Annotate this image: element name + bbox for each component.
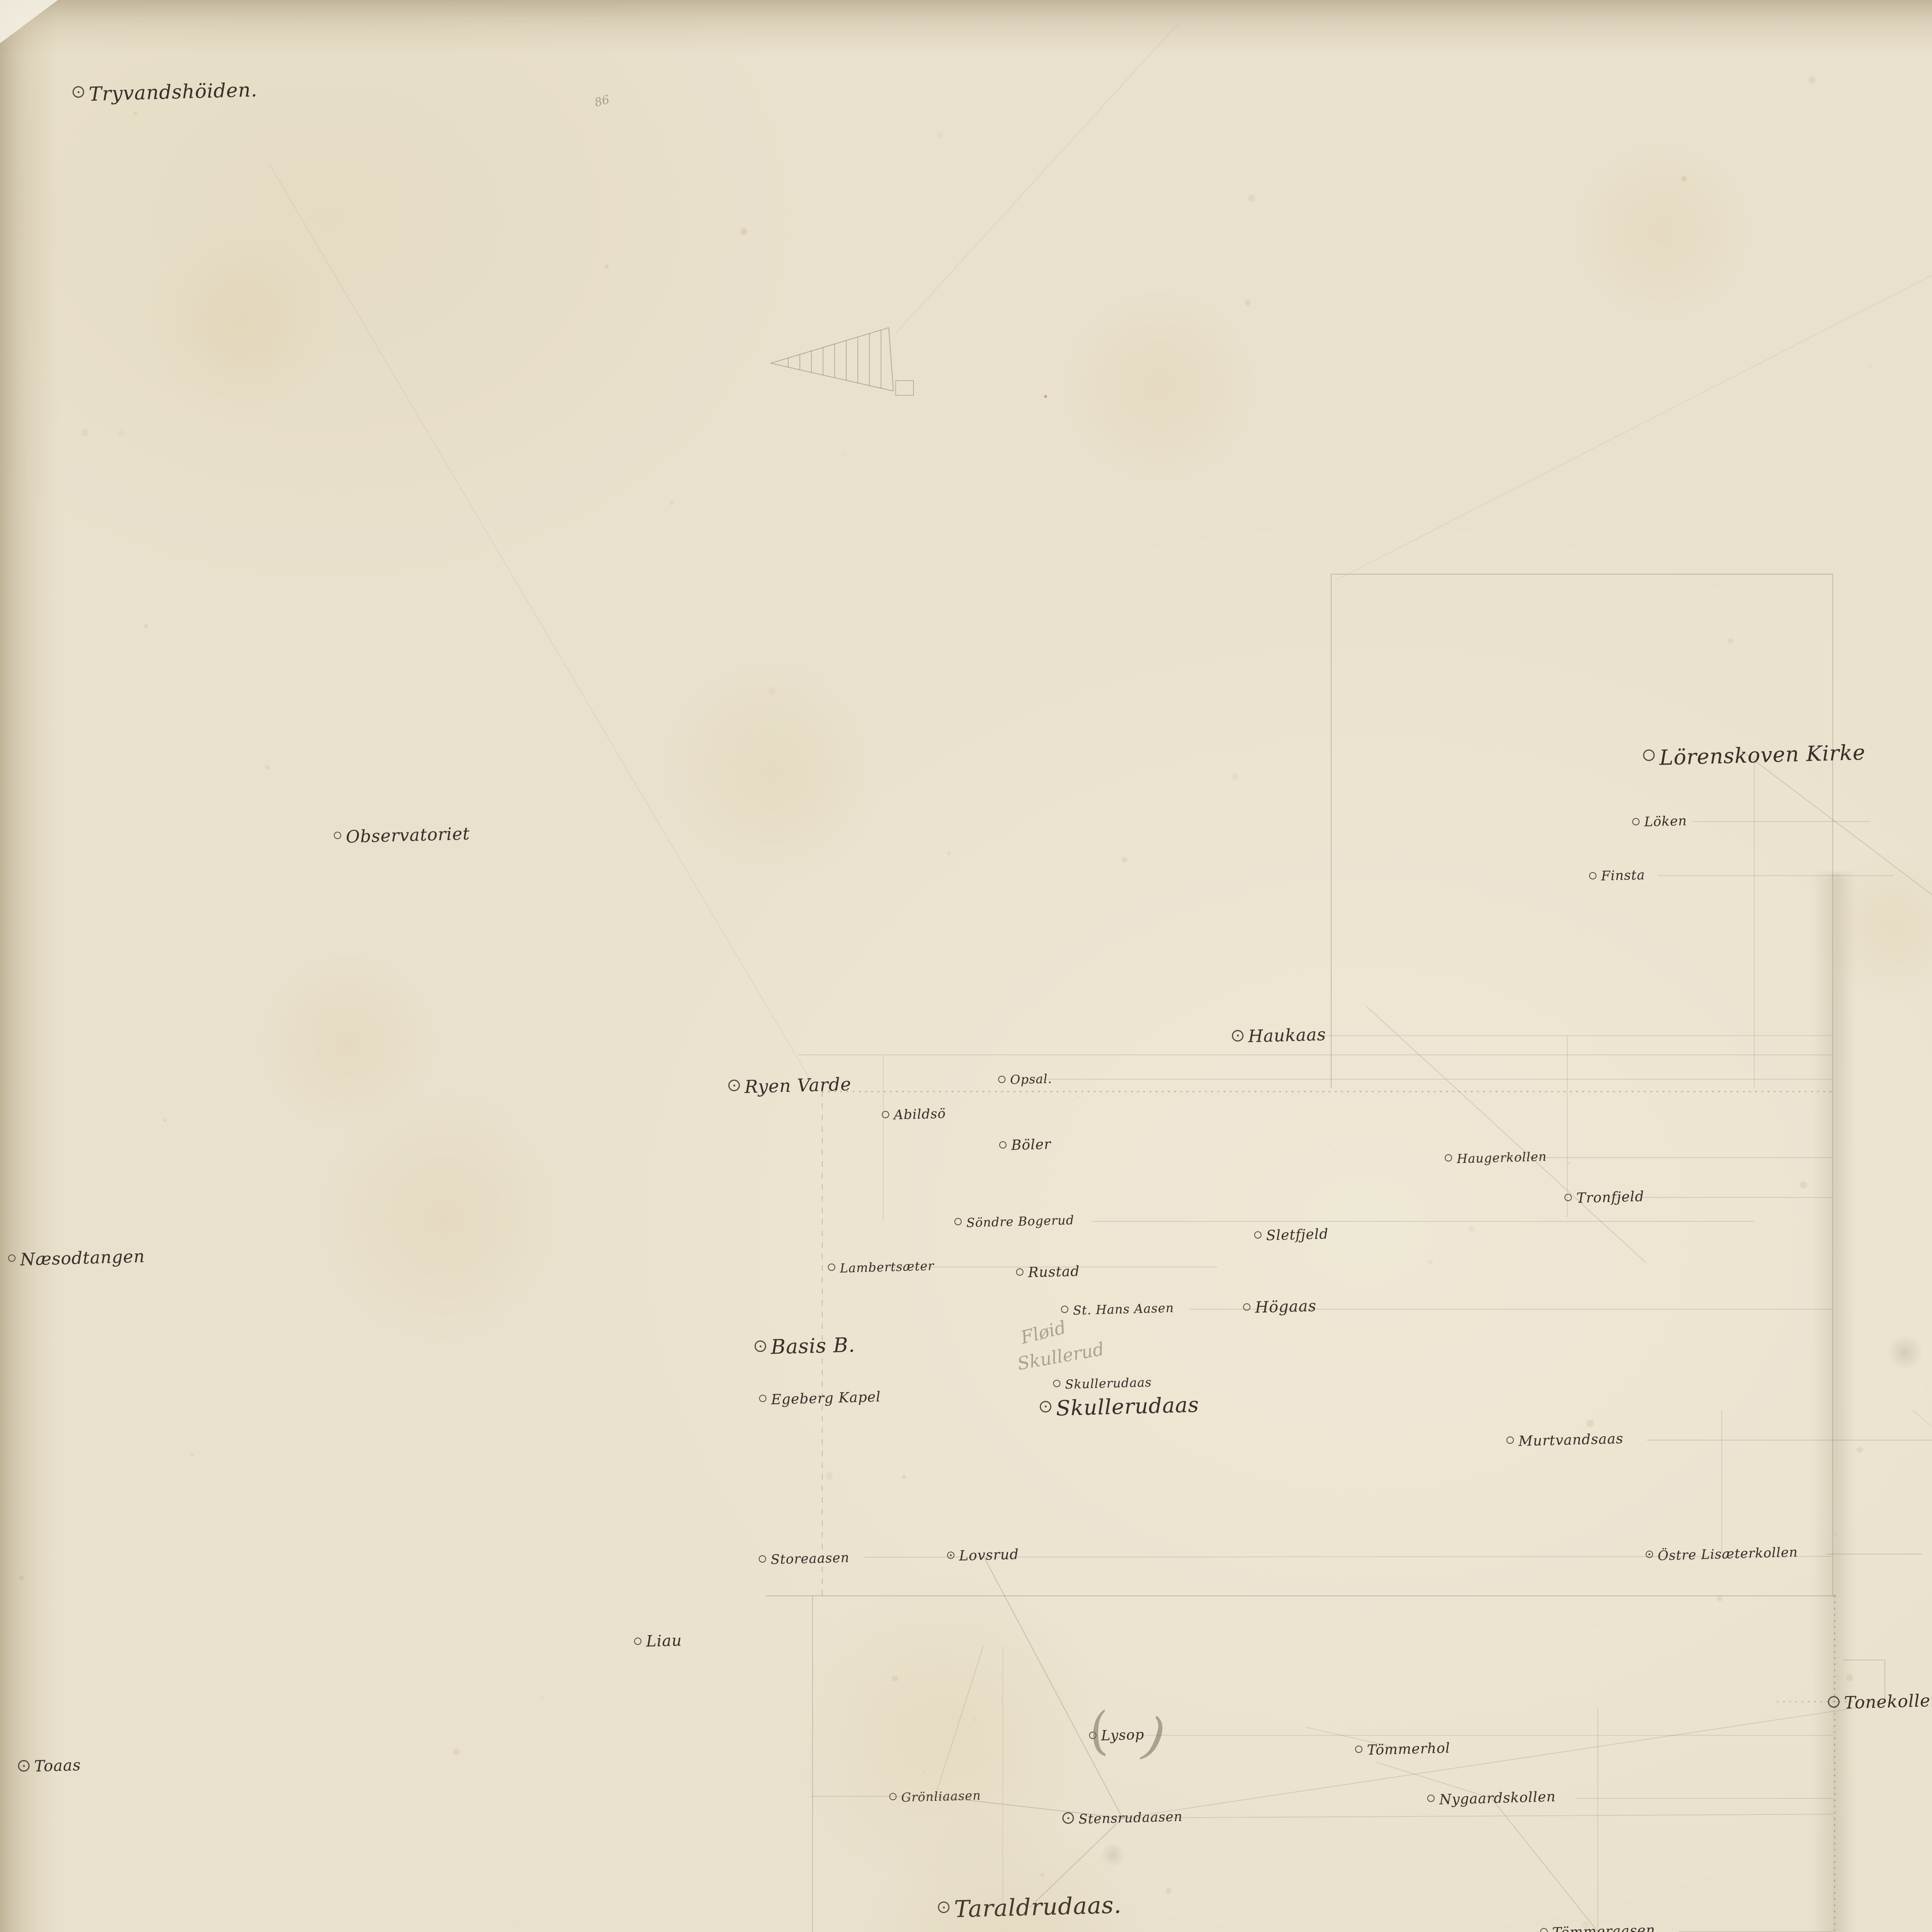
station-marker-icon: [18, 1760, 30, 1772]
torn-corner: [0, 0, 58, 43]
foxing-speck: [1232, 773, 1238, 780]
foxing-speck: [1869, 364, 1872, 367]
paper-stain: [657, 657, 889, 889]
foxing-speck: [1468, 1226, 1475, 1233]
foxing-speck: [1041, 1873, 1044, 1877]
station-marker-icon: [1589, 872, 1597, 879]
station-marker-icon: [1061, 1306, 1068, 1313]
station-label: Skullerudaas: [1056, 1393, 1199, 1421]
station-label: Taraldrudaas.: [954, 1891, 1122, 1923]
station-label: Tömmeraasen: [1552, 1922, 1656, 1932]
station-label: Liau: [646, 1632, 682, 1650]
foxing-speck: [740, 228, 747, 235]
station-tryvandshoiden: Tryvandshöiden.: [73, 81, 257, 103]
foxing-speck: [190, 1453, 194, 1457]
station-sondre-bogerud: Söndre Bogerud: [954, 1214, 1074, 1229]
station-marker-icon: [1355, 1746, 1362, 1753]
station-marker-icon: [1445, 1154, 1452, 1162]
station-label: Lysop: [1101, 1727, 1145, 1744]
station-haugerkollen: Haugerkollen: [1445, 1150, 1547, 1165]
foxing-speck: [1248, 195, 1255, 202]
station-rustad: Rustad: [1016, 1264, 1080, 1280]
station-marker-icon: [828, 1264, 835, 1271]
foxing-speck: [119, 430, 124, 436]
station-tommeraasen: Tömmeraasen: [1540, 1924, 1655, 1932]
station-ryen-varde: Ryen Varde: [728, 1075, 851, 1096]
station-finsta: Finsta: [1589, 868, 1645, 883]
foxing-speck: [1834, 1532, 1837, 1535]
station-marker-icon: [1062, 1812, 1074, 1824]
station-marker-icon: [634, 1638, 641, 1645]
paper-stain: [784, 1569, 1109, 1893]
foxing-speck: [514, 1923, 516, 1925]
paper-stain: [1816, 850, 1932, 1005]
station-boler: Böler: [999, 1137, 1051, 1153]
station-label: Nygaardskollen: [1439, 1789, 1556, 1808]
foxing-speck: [1728, 638, 1733, 644]
foxing-speck: [769, 688, 776, 695]
station-label: Haukaas: [1248, 1025, 1327, 1046]
foxing-speck: [1567, 1162, 1570, 1165]
pencil-note: Fløid: [1019, 1316, 1068, 1348]
foxing-speck: [1428, 1259, 1432, 1264]
station-lorenskoven-kirke: Lörenskoven Kirke: [1643, 743, 1865, 767]
paper-vignette: [0, 0, 1932, 1932]
station-ostre-lisaeterkollen: Östre Lisæterkollen: [1646, 1546, 1798, 1562]
pencil-note: 86: [593, 93, 611, 110]
foxing-speck: [1717, 1596, 1722, 1601]
station-marker-icon: [334, 832, 341, 839]
station-label: Böler: [1011, 1136, 1051, 1153]
station-liau: Liau: [634, 1632, 682, 1650]
foxing-speck: [19, 1575, 24, 1580]
station-marker-icon: [759, 1395, 767, 1402]
station-marker-icon: [998, 1076, 1005, 1083]
station-label: St. Hans Aasen: [1073, 1301, 1174, 1318]
foxing-speck: [163, 1119, 167, 1122]
station-label: Tronfjeld: [1576, 1189, 1644, 1206]
station-label: Basis B.: [770, 1333, 855, 1359]
foxing-speck: [1166, 1888, 1172, 1894]
station-marker-icon: [1507, 1437, 1514, 1444]
foxing-speck: [453, 1748, 460, 1755]
foxing-speck: [265, 765, 270, 770]
survey-line: [1492, 1798, 1598, 1932]
station-loken: Löken: [1632, 814, 1687, 829]
station-marker-icon: [1016, 1269, 1024, 1276]
survey-line: [771, 363, 893, 391]
station-storeaasen: Storeaasen: [759, 1551, 850, 1566]
station-marker-icon: [954, 1218, 962, 1225]
survey-line: [983, 1555, 1122, 1818]
station-marker-icon: [73, 86, 84, 98]
station-marker-icon: [1232, 1030, 1243, 1041]
station-label: Skullerudaas: [1065, 1375, 1152, 1392]
station-haukaas: Haukaas: [1232, 1026, 1326, 1046]
station-skullerudaas: Skullerudaas: [1040, 1395, 1199, 1419]
foxing-speck: [892, 1675, 898, 1682]
station-murtvandsaas: Murtvandsaas: [1507, 1432, 1624, 1448]
survey-line: [1367, 1007, 1646, 1262]
foxing-speck: [1800, 1181, 1807, 1189]
station-marker-icon: [1565, 1194, 1572, 1201]
station-marker-icon: [1040, 1401, 1051, 1412]
station-st-hans-aasen: St. Hans Aasen: [1061, 1302, 1174, 1316]
station-marker-icon: [938, 1901, 949, 1913]
station-label: Östre Lisæterkollen: [1658, 1544, 1798, 1563]
survey-line: [896, 23, 1179, 332]
station-label: Næsodtangen: [20, 1247, 145, 1269]
station-marker-icon: [947, 1552, 954, 1559]
foxing-speck: [1587, 1420, 1594, 1427]
survey-line: [1122, 1814, 1833, 1818]
station-marker-icon: [1643, 749, 1655, 761]
survey-line: [270, 166, 811, 1082]
station-marker-icon: [1632, 818, 1639, 825]
station-label: Opsal.: [1010, 1071, 1053, 1087]
foxing-speck: [1594, 1624, 1596, 1626]
station-tommerhol: Tömmerhol: [1355, 1742, 1450, 1757]
station-label: Lovsrud: [959, 1546, 1019, 1564]
foxing-speck: [843, 452, 845, 455]
paper-stain: [255, 951, 440, 1136]
station-label: Tonekollen: [1844, 1690, 1932, 1713]
station-basis-b: Basis B.: [755, 1335, 855, 1358]
survey-lines: [0, 0, 1932, 1932]
foxing-speck: [605, 265, 609, 268]
survey-line: [1337, 70, 1932, 580]
foxing-speck: [1681, 176, 1687, 182]
station-label: Finsta: [1601, 867, 1645, 884]
paper-spot: [1888, 1335, 1922, 1370]
station-label: Egeberg Kapel: [771, 1389, 881, 1408]
survey-line: [771, 328, 889, 363]
map-canvas: Tryvandshöiden.Rusbjerg GaardLörenskoven…: [0, 0, 1932, 1932]
station-lambertsaeter: Lambertsæter: [828, 1260, 934, 1274]
foxing-speck: [937, 132, 944, 138]
station-label: Högaas: [1255, 1297, 1317, 1316]
station-taraldrudaas: Taraldrudaas.: [938, 1894, 1121, 1921]
foxing-speck: [1846, 1674, 1853, 1681]
paper-stain: [139, 224, 340, 425]
station-marker-icon: [1540, 1928, 1548, 1932]
station-marker-icon: [1427, 1795, 1435, 1802]
station-marker-icon: [755, 1340, 766, 1352]
station-marker-icon: [1089, 1732, 1097, 1739]
station-label: Observatoriet: [345, 824, 470, 847]
station-label: Haugerkollen: [1457, 1149, 1547, 1166]
fold-smudge: [1812, 873, 1855, 1932]
foxing-speck: [1122, 857, 1127, 862]
station-nygaardskollen: Nygaardskollen: [1427, 1791, 1556, 1806]
foxing-speck: [669, 500, 673, 505]
survey-line: [1913, 1410, 1932, 1492]
station-tonekollen: Tonekollen: [1828, 1692, 1932, 1712]
survey-line: [935, 1646, 983, 1796]
station-marker-icon: [728, 1080, 740, 1091]
station-marker-icon: [8, 1255, 15, 1262]
station-hogaas: Högaas: [1243, 1298, 1316, 1316]
foxing-speck: [1927, 1388, 1929, 1389]
station-label: Tömmerhol: [1367, 1740, 1450, 1759]
foxing-speck: [144, 624, 148, 628]
pencil-note: Skullerud: [1016, 1338, 1106, 1374]
station-label: Löken: [1644, 813, 1687, 830]
station-label: Lambertsæter: [840, 1259, 934, 1276]
foxing-speck: [81, 429, 88, 436]
station-lovsrud: Lovsrud: [947, 1548, 1019, 1563]
station-label: Storeaasen: [770, 1550, 850, 1567]
station-sletfjeld: Sletfjeld: [1254, 1227, 1328, 1243]
foxing-speck: [1327, 1143, 1330, 1146]
station-opsal: Opsal.: [998, 1072, 1052, 1087]
station-label: Söndre Bogerud: [966, 1213, 1074, 1230]
foxing-speck: [541, 1696, 544, 1699]
station-marker-icon: [1646, 1551, 1653, 1558]
station-toaas: Toaas: [18, 1757, 81, 1775]
station-lysop: Lysop: [1089, 1728, 1145, 1743]
station-label: Ryen Varde: [744, 1073, 852, 1097]
station-label: Lörenskoven Kirke: [1659, 740, 1866, 770]
foxing-speck: [972, 1717, 976, 1721]
station-label: Sletfjeld: [1266, 1226, 1328, 1243]
station-label: Stensrudaasen: [1078, 1809, 1183, 1827]
station-stensrudaasen: Stensrudaasen: [1062, 1810, 1182, 1826]
paper-stain: [1569, 139, 1754, 325]
survey-line: [889, 328, 893, 391]
paper-stain: [313, 1086, 576, 1349]
station-marker-icon: [1828, 1696, 1840, 1708]
station-marker-icon: [1243, 1303, 1250, 1311]
station-marker-icon: [1053, 1380, 1060, 1387]
station-naesodtangen: Næsodtangen: [8, 1248, 145, 1268]
station-gronliaasen: Grönliaasen: [889, 1789, 981, 1804]
station-label: Rustad: [1028, 1264, 1080, 1281]
station-label: Abildsö: [894, 1106, 946, 1123]
foxing-speck: [1857, 1447, 1863, 1453]
station-marker-icon: [889, 1793, 896, 1800]
station-label: Tryvandshöiden.: [88, 78, 258, 105]
foxing-speck: [923, 1771, 925, 1773]
survey-line: [1735, 746, 1932, 1117]
station-marker-icon: [759, 1555, 766, 1563]
foxing-speck: [133, 111, 137, 115]
foxing-speck: [947, 851, 951, 855]
paper-stain: [1059, 286, 1260, 487]
foxing-speck: [902, 1475, 906, 1479]
foxing-speck: [1245, 300, 1250, 306]
station-skullerudaas-lille: Skullerudaas: [1053, 1376, 1151, 1391]
foxing-speck: [1809, 77, 1815, 83]
station-egeberg-kapel: Egeberg Kapel: [759, 1391, 881, 1406]
paper-spot: [1101, 1843, 1125, 1867]
station-marker-icon: [999, 1141, 1007, 1149]
station-label: Murtvandsaas: [1518, 1431, 1624, 1449]
station-abildso: Abildsö: [882, 1107, 946, 1122]
station-observatoriet: Observatoriet: [334, 826, 470, 845]
station-marker-icon: [882, 1111, 889, 1118]
foxing-speck: [826, 1472, 833, 1480]
station-tronfjeld: Tronfjeld: [1565, 1190, 1644, 1206]
station-label: Toaas: [34, 1756, 81, 1775]
foxing-speck: [1078, 1096, 1080, 1098]
station-marker-icon: [1254, 1231, 1262, 1239]
station-label: Grönliaasen: [901, 1788, 981, 1804]
paper-spot: [1044, 395, 1048, 398]
